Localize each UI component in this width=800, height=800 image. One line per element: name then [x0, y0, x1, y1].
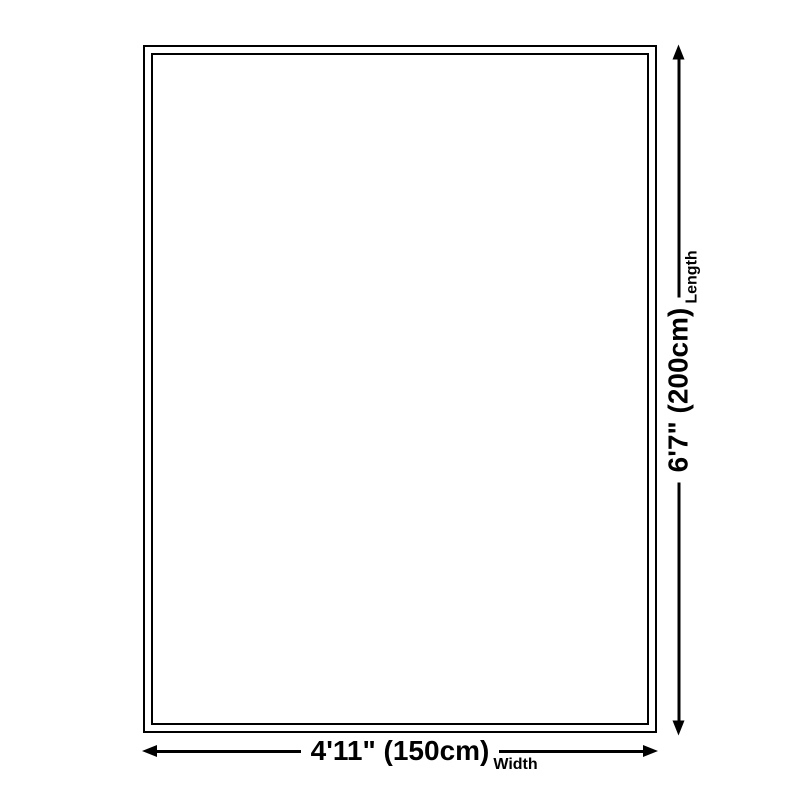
arrow-right-icon	[643, 745, 658, 757]
rug-outline-inner	[151, 53, 649, 725]
length-label: Length	[684, 250, 702, 303]
width-arrow-left-segment	[142, 745, 301, 757]
length-arrow-bottom-segment	[673, 482, 685, 735]
rug-outline-outer	[143, 45, 657, 733]
arrow-up-icon	[673, 44, 685, 59]
arrow-down-icon	[673, 721, 685, 736]
length-dimension-line	[677, 59, 680, 297]
width-arrow-right-segment: Width	[499, 745, 658, 757]
width-dimension: 4'11" (150cm) Width	[142, 733, 658, 769]
width-value: 4'11" (150cm)	[311, 737, 490, 765]
width-label: Width	[493, 756, 537, 774]
width-dimension-line	[157, 750, 301, 753]
dimension-diagram: 6'7" (200cm) Length 4'11" (150cm) Width	[0, 0, 800, 800]
length-dimension-line	[677, 482, 680, 720]
arrow-left-icon	[142, 745, 157, 757]
length-value: 6'7" (200cm)	[665, 308, 693, 473]
length-arrow-top-segment: Length	[673, 44, 685, 297]
length-dimension: 6'7" (200cm) Length	[651, 45, 707, 736]
width-dimension-line	[499, 750, 643, 753]
